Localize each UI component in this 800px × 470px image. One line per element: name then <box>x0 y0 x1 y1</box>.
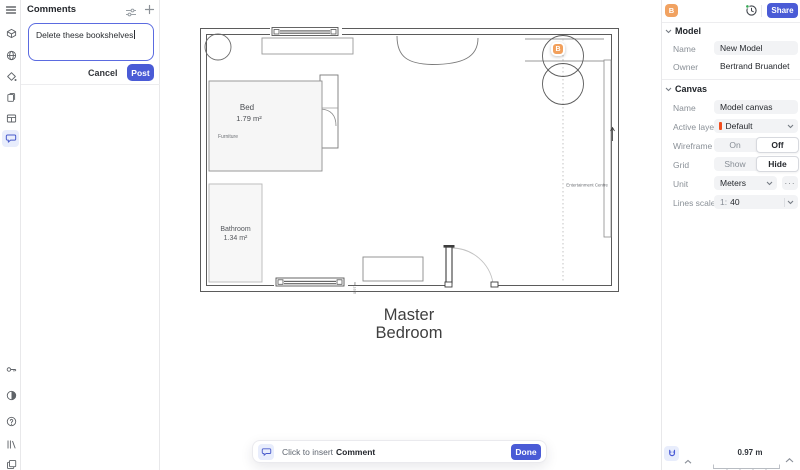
model-section-title: Model <box>675 26 701 36</box>
wireframe-off-option[interactable]: Off <box>756 137 799 153</box>
snap-button[interactable] <box>664 446 679 461</box>
window-top[interactable] <box>272 28 338 36</box>
lines-scale-label: Lines scale <box>673 198 716 208</box>
wireframe-label: Wireframe <box>673 141 712 151</box>
chevron-down-icon <box>787 200 794 205</box>
left-toolbar <box>0 0 21 470</box>
collaborator-badge[interactable]: B <box>551 42 565 56</box>
layers-icon[interactable] <box>5 458 17 470</box>
world-icon[interactable] <box>5 49 17 61</box>
collapse-icon[interactable] <box>684 452 692 470</box>
hint-text-bold: Comment <box>336 447 375 457</box>
model-name-value: New Model <box>714 43 763 53</box>
done-button[interactable]: Done <box>511 444 541 460</box>
dresser[interactable] <box>262 38 353 54</box>
canvas-section-title: Canvas <box>675 84 707 94</box>
grid-show-option[interactable]: Show <box>714 157 756 171</box>
properties-panel: B Share Model Name New Model Owner Bertr… <box>661 0 800 470</box>
active-layer-label: Active layer <box>673 122 717 132</box>
panel-divider <box>662 22 800 23</box>
chevron-down-icon <box>665 29 672 34</box>
dimension-label: 0.97 m <box>352 281 357 294</box>
library-icon[interactable] <box>5 438 17 450</box>
room-title-line1: Master <box>384 306 435 324</box>
grid-toggle: Show Hide <box>714 157 798 171</box>
window-bottom[interactable] <box>276 278 344 286</box>
snap-icon <box>667 449 677 459</box>
comment-input-text: Delete these bookshelves <box>36 30 133 40</box>
app-window: Comments Delete these bookshelves Cancel… <box>0 0 800 470</box>
active-layer-value: Default <box>726 121 753 131</box>
model-name-label: Name <box>673 44 696 54</box>
panel-divider <box>21 84 160 85</box>
zoom-scale-value: 0.97 m <box>722 448 778 457</box>
round-table[interactable] <box>205 34 231 60</box>
help-icon[interactable] <box>5 415 17 427</box>
paint-icon[interactable] <box>5 70 17 82</box>
grid-hide-option[interactable]: Hide <box>756 156 799 172</box>
add-comment-icon[interactable] <box>143 3 156 21</box>
bathroom-area-label: 1.34 m² <box>224 235 248 242</box>
chevron-down-icon <box>766 181 773 186</box>
unit-label: Unit <box>673 179 688 189</box>
topbar-divider <box>761 5 762 17</box>
unit-value: Meters <box>714 178 746 188</box>
cancel-button[interactable]: Cancel <box>88 68 118 78</box>
comment-input[interactable]: Delete these bookshelves <box>28 23 154 61</box>
user-avatar[interactable]: B <box>665 4 678 17</box>
lines-scale-value: 40 <box>730 197 739 207</box>
layer-color-swatch <box>719 122 722 130</box>
contrast-icon[interactable] <box>5 389 17 401</box>
lines-scale-select[interactable]: 1: 40 <box>714 195 798 209</box>
scale-ruler <box>713 458 781 470</box>
chevron-down-icon <box>665 87 672 92</box>
model-name-input[interactable]: New Model <box>714 41 798 55</box>
comments-panel-title: Comments <box>27 4 76 15</box>
canvas-section-header[interactable]: Canvas <box>665 84 707 94</box>
section-divider <box>662 79 800 80</box>
room-title[interactable]: Master Bedroom <box>376 306 443 342</box>
entertainment-label: Entertainment Centre <box>566 183 608 188</box>
wardrobe[interactable] <box>320 75 338 148</box>
owner-value-wrap: Bertrand Bruandet <box>714 59 798 73</box>
lines-scale-prefix: 1: <box>714 197 727 207</box>
armchair[interactable] <box>397 36 478 65</box>
floor-plan: Bed 1.79 m² Furniture Bathroom 1.34 m² 0… <box>160 0 661 470</box>
drawing-canvas[interactable]: Bed 1.79 m² Furniture Bathroom 1.34 m² 0… <box>160 0 661 470</box>
control-divider <box>784 198 785 207</box>
menu-icon[interactable] <box>5 4 17 16</box>
grid-label: Grid <box>673 160 689 170</box>
owner-value: Bertrand Bruandet <box>714 61 789 71</box>
owner-label: Owner <box>673 62 698 72</box>
wireframe-on-option[interactable]: On <box>714 138 756 152</box>
tv-stand[interactable] <box>363 257 423 281</box>
comments-icon <box>5 133 17 144</box>
sort-comments-icon[interactable] <box>125 5 137 23</box>
history-icon[interactable] <box>745 4 758 22</box>
model-section-header[interactable]: Model <box>665 26 701 36</box>
chevron-down-icon <box>787 124 794 129</box>
bed[interactable]: Bed 1.79 m² Furniture <box>209 81 322 171</box>
canvas-name-value: Model canvas <box>714 102 772 112</box>
toolbar-hint: Click to insertComment <box>282 447 375 457</box>
comments-tool-active[interactable] <box>2 130 19 147</box>
comments-panel: Comments Delete these bookshelves Cancel… <box>21 0 160 470</box>
entertainment-centre[interactable]: Entertainment Centre <box>566 60 611 237</box>
bathroom[interactable]: Bathroom 1.34 m² <box>209 184 262 282</box>
bed-label: Bed <box>240 103 254 112</box>
canvas-name-input[interactable]: Model canvas <box>714 100 798 114</box>
text-cursor <box>134 30 135 39</box>
pages-icon[interactable] <box>5 91 17 103</box>
bathroom-label: Bathroom <box>220 226 251 233</box>
unit-select[interactable]: Meters <box>714 176 777 190</box>
share-button[interactable]: Share <box>767 3 798 18</box>
post-button[interactable]: Post <box>127 64 154 81</box>
furniture-label: Furniture <box>218 134 238 140</box>
expand-panel-icon[interactable] <box>785 451 794 469</box>
hint-text: Click to insert <box>282 447 333 457</box>
table-icon[interactable] <box>5 112 17 124</box>
comment-toolbar: Click to insertComment Done <box>252 440 547 463</box>
comment-mode-icon <box>258 444 274 460</box>
unit-more-button[interactable]: ··· <box>782 176 798 190</box>
pin-icon[interactable] <box>5 363 17 375</box>
wireframe-toggle: On Off <box>714 138 798 152</box>
bed-area-label: 1.79 m² <box>236 114 262 123</box>
door-opening-mask <box>451 276 492 290</box>
box-icon[interactable] <box>5 27 17 39</box>
room-title-line2: Bedroom <box>376 324 443 342</box>
canvas-name-label: Name <box>673 103 696 113</box>
active-layer-select[interactable]: Default <box>714 119 798 133</box>
